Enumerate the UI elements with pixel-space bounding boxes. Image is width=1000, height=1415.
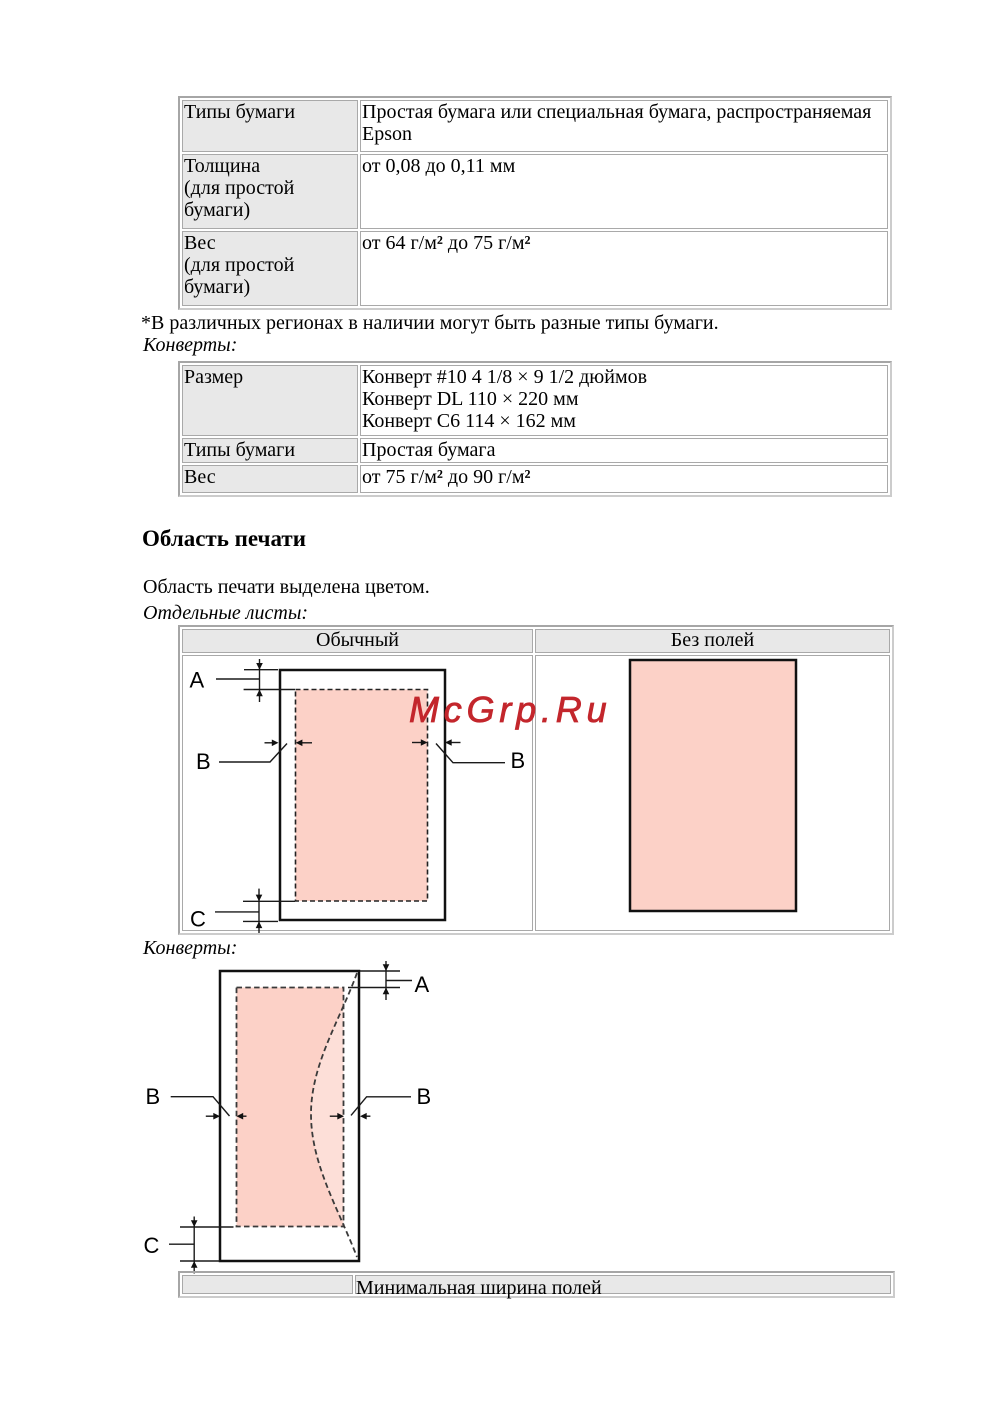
svg-text:C: C [144, 1233, 160, 1258]
svg-text:B: B [196, 749, 211, 774]
svg-text:B: B [146, 1084, 161, 1109]
svg-text:B: B [511, 748, 526, 773]
svg-text:B: B [417, 1084, 432, 1109]
svg-text:A: A [190, 668, 205, 693]
svg-text:A: A [415, 972, 430, 997]
svg-text:C: C [190, 907, 206, 932]
